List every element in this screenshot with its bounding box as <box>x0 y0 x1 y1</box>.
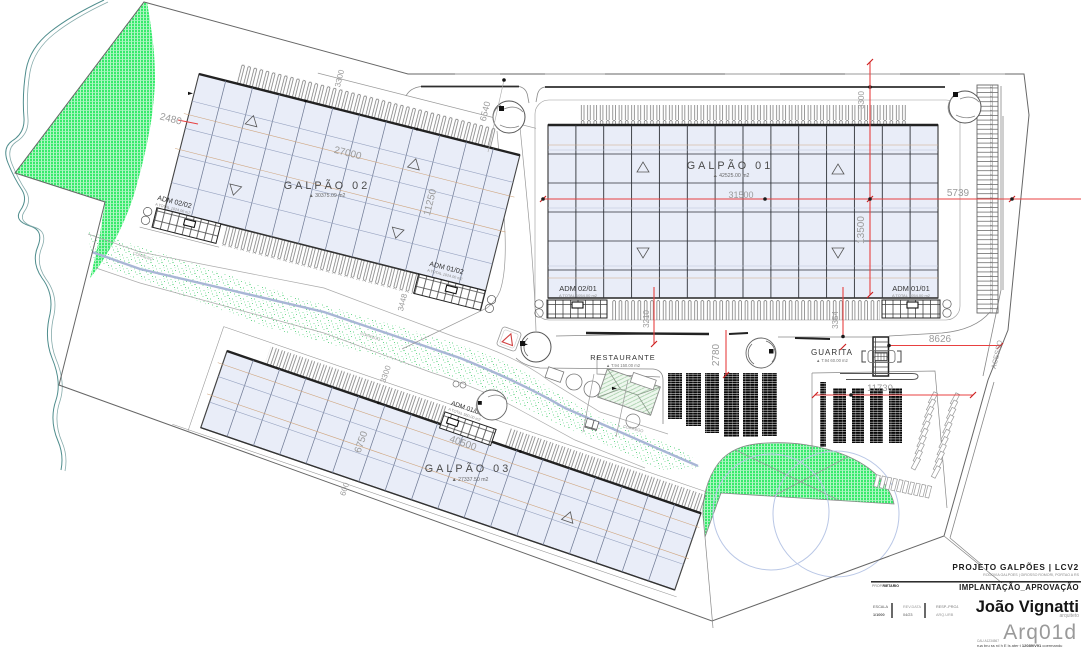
svg-text:A TOTAL 1054.00 m2: A TOTAL 1054.00 m2 <box>559 293 598 298</box>
svg-text:31500: 31500 <box>728 190 753 200</box>
svg-text:RESP.-PROJ.: RESP.-PROJ. <box>936 605 959 609</box>
svg-text:5739: 5739 <box>947 188 970 199</box>
svg-text:GALPÃO 01: GALPÃO 01 <box>687 159 773 172</box>
svg-text:IMPLANTAÇÃO_APROVAÇÃO: IMPLANTAÇÃO_APROVAÇÃO <box>959 583 1079 592</box>
svg-text:3210: 3210 <box>642 310 651 328</box>
svg-text:ADM 02/01: ADM 02/01 <box>559 284 597 293</box>
svg-text:3354: 3354 <box>831 311 840 329</box>
svg-text:3300: 3300 <box>857 91 866 109</box>
svg-text:▲ 30375.09 m2: ▲ 30375.09 m2 <box>309 193 346 199</box>
svg-text:GUARITA: GUARITA <box>811 348 853 357</box>
svg-text:PROJETO GALPÕES | LCV2: PROJETO GALPÕES | LCV2 <box>952 562 1079 572</box>
svg-text:▲ T.94 150.00 m2: ▲ T.94 150.00 m2 <box>606 363 641 368</box>
svg-text:▲ 42525.00 m2: ▲ 42525.00 m2 <box>713 173 750 179</box>
svg-text:A TOTAL 1054.00 m2: A TOTAL 1054.00 m2 <box>892 293 931 298</box>
svg-text:2780: 2780 <box>711 343 722 366</box>
svg-text:Arq01d: Arq01d <box>1003 621 1077 644</box>
svg-text:▲ T.94 60.00 m2: ▲ T.94 60.00 m2 <box>816 358 848 363</box>
svg-text:ADM 01/01: ADM 01/01 <box>892 284 930 293</box>
svg-text:RODOVIA GALPOES | GIROSSO RO: RODOVIA GALPOES | GIROSSO ROMORI, PORTAO… <box>983 573 1079 577</box>
svg-text:1/1000: 1/1000 <box>873 613 885 617</box>
svg-text:arquiteto: arquiteto <box>1060 613 1080 619</box>
svg-text:ARQ.URB: ARQ.URB <box>936 613 954 617</box>
svg-text:ESCALA: ESCALA <box>873 605 888 609</box>
svg-text:8626: 8626 <box>929 334 952 345</box>
svg-text:rua bru ss rd h E ls ater t: rua bru ss rd h E ls ater t 12089/V91 co… <box>977 643 1062 648</box>
svg-text:PROP.RIETARIO: PROP.RIETARIO <box>872 584 899 588</box>
svg-text:REV.DATA: REV.DATA <box>903 605 922 609</box>
svg-text:11730: 11730 <box>867 383 893 394</box>
svg-text:GALPÃO 03: GALPÃO 03 <box>425 462 511 475</box>
svg-text:04/23: 04/23 <box>903 613 913 617</box>
svg-text:▲ 27337.50 m2: ▲ 27337.50 m2 <box>452 477 489 483</box>
svg-text:13500: 13500 <box>856 216 867 244</box>
svg-text:RESTAURANTE: RESTAURANTE <box>590 353 655 362</box>
svg-text:GALPÃO 02: GALPÃO 02 <box>284 179 370 192</box>
